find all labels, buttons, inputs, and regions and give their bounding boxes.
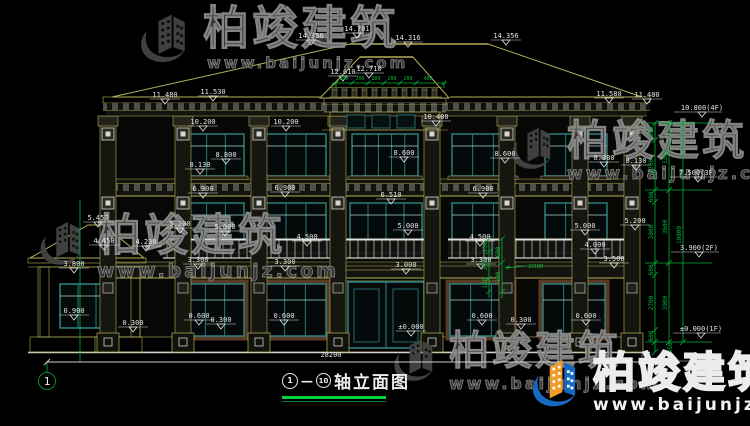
svg-text:4.230: 4.230 xyxy=(135,238,156,246)
svg-text:5.000: 5.000 xyxy=(574,222,595,230)
dim-label: 0.900 xyxy=(59,307,89,320)
svg-text:0.900: 0.900 xyxy=(63,307,84,315)
dim-label: 3.900(2F) xyxy=(671,244,719,257)
dim-label: 4.500 xyxy=(465,233,495,246)
svg-text:14.701: 14.701 xyxy=(344,25,369,33)
title-underline-2 xyxy=(282,401,386,402)
green-dim-label: 2700 xyxy=(648,158,655,173)
dim-label: 11.480 xyxy=(150,91,180,104)
svg-text:0.600: 0.600 xyxy=(575,312,596,320)
svg-text:10.200: 10.200 xyxy=(190,118,215,126)
dim-label: 3.300 xyxy=(183,256,213,269)
drawing-title: 轴立面图 xyxy=(334,368,410,393)
dim-label: 5.000 xyxy=(210,223,240,236)
dim-label: 4.500 xyxy=(292,233,322,246)
dim-label: 14.701 xyxy=(342,25,372,38)
dim-label: 7.500(3F) xyxy=(670,169,718,182)
dim-label: ±0.000 xyxy=(396,323,426,336)
svg-text:8.600: 8.600 xyxy=(393,149,414,157)
svg-text:3.300: 3.300 xyxy=(187,256,208,264)
green-dim-label: 200 xyxy=(403,76,412,82)
svg-text:±0.000(1F): ±0.000(1F) xyxy=(680,325,722,333)
total-width-dimension xyxy=(44,352,645,366)
dim-label: 6.900 xyxy=(270,184,300,197)
svg-text:12.610: 12.610 xyxy=(330,68,355,76)
green-note-label: 2X18M xyxy=(528,264,543,270)
dim-label: 0.300 xyxy=(506,316,536,329)
cad-elevation-screenshot: 柏竣建筑 www.baijunjz.com 柏竣建筑 www.baijunjz.… xyxy=(0,0,750,426)
svg-text:3.000: 3.000 xyxy=(395,261,416,269)
svg-text:10.400: 10.400 xyxy=(423,113,448,121)
green-dim-label: 3600 xyxy=(662,219,669,234)
svg-text:12.710: 12.710 xyxy=(356,65,381,73)
dim-label: 8.600 xyxy=(389,149,419,162)
green-dim-label: 600 xyxy=(648,126,655,137)
dim-label: ±0.000(1F) xyxy=(673,325,722,338)
axis-start-bubble: 1 xyxy=(282,373,298,389)
dim-label: 5.200 xyxy=(620,217,650,230)
svg-text:6.900: 6.900 xyxy=(192,185,213,193)
svg-text:0.600: 0.600 xyxy=(188,312,209,320)
dim-label: 11.480 xyxy=(632,91,662,104)
dim-label: 11.530 xyxy=(198,88,228,101)
dim-label: 11.580 xyxy=(594,90,624,103)
svg-text:4.500: 4.500 xyxy=(469,233,490,241)
dim-label: 3.000 xyxy=(391,261,421,274)
dim-label: 4.000 xyxy=(580,241,610,254)
dim-label: 10.200 xyxy=(271,118,301,131)
green-dim-label: 200 xyxy=(355,76,364,82)
green-dim-label: 200 xyxy=(371,76,380,82)
dim-label: 6.900 xyxy=(468,185,498,198)
drawing-title-block: 1 — 10 轴立面图 xyxy=(282,368,410,402)
dim-label: 8.130 xyxy=(621,157,651,170)
svg-text:5.000: 5.000 xyxy=(397,222,418,230)
dim-label: 0.600 xyxy=(571,312,601,325)
dim-label: 8.600 xyxy=(490,150,520,163)
svg-text:8.800: 8.800 xyxy=(215,151,236,159)
svg-text:-0.450: -0.450 xyxy=(687,353,712,361)
svg-text:11.480: 11.480 xyxy=(634,91,659,99)
svg-text:10.800(4F): 10.800(4F) xyxy=(681,104,723,112)
svg-text:0.300: 0.300 xyxy=(510,316,531,324)
green-dim-label: 3900 xyxy=(662,295,669,310)
svg-text:11.530: 11.530 xyxy=(200,88,225,96)
green-dim-label: 150 xyxy=(482,277,489,288)
svg-text:5.200: 5.200 xyxy=(169,220,190,228)
dim-label: 3.800 xyxy=(59,260,89,273)
green-dim-label: 600 xyxy=(648,330,655,341)
dim-label: 14.316 xyxy=(393,34,423,47)
svg-text:5.457: 5.457 xyxy=(87,214,108,222)
svg-text:0.600: 0.600 xyxy=(273,312,294,320)
total-width-label: 28200 xyxy=(320,351,341,359)
svg-text:8.600: 8.600 xyxy=(494,150,515,158)
dim-label: 8.130 xyxy=(185,161,215,174)
dim-label: 6.900 xyxy=(188,185,218,198)
svg-text:3.900(2F): 3.900(2F) xyxy=(680,244,718,252)
svg-text:8.130: 8.130 xyxy=(625,157,646,165)
svg-text:14.316: 14.316 xyxy=(395,34,420,42)
svg-text:4.500: 4.500 xyxy=(296,233,317,241)
green-dim-label: 600 xyxy=(495,246,502,257)
dim-label: 4.450 xyxy=(89,237,119,250)
dim-label: 5.000 xyxy=(570,222,600,235)
dim-label: 14.356 xyxy=(296,32,326,45)
svg-text:3.500: 3.500 xyxy=(603,255,624,263)
svg-text:14.356: 14.356 xyxy=(493,32,518,40)
svg-text:14.356: 14.356 xyxy=(298,32,323,40)
svg-text:8.130: 8.130 xyxy=(189,161,210,169)
svg-text:3.800: 3.800 xyxy=(63,260,84,268)
axis-end-bubble: 10 xyxy=(316,373,331,388)
svg-text:7.500(3F): 7.500(3F) xyxy=(679,169,717,177)
svg-text:5.000: 5.000 xyxy=(214,223,235,231)
green-dim-label: 450 xyxy=(667,342,674,353)
dim-label: 3.300 xyxy=(466,256,496,269)
svg-text:11.480: 11.480 xyxy=(152,91,177,99)
green-dim-label: 400 xyxy=(423,76,432,82)
svg-text:11.580: 11.580 xyxy=(596,90,621,98)
dim-label: 0.600 xyxy=(269,312,299,325)
dim-label: 5.457 xyxy=(83,214,113,227)
dimension-annotation-layer: 1 xyxy=(0,0,750,426)
dim-label: 0.300 xyxy=(206,316,236,329)
green-dim-label: 10800 xyxy=(676,226,683,244)
green-dim-label: 300 xyxy=(495,271,502,282)
title-underline xyxy=(282,396,386,399)
green-dim-label: 200 xyxy=(339,76,348,82)
dim-label: 5.000 xyxy=(393,222,423,235)
dim-label: 3.500 xyxy=(599,255,629,268)
dim-label: -0.450 xyxy=(672,353,720,366)
axis-bubble-number: 1 xyxy=(44,375,51,388)
svg-text:4.000: 4.000 xyxy=(584,241,605,249)
svg-text:±0.000: ±0.000 xyxy=(398,323,423,331)
svg-text:5.200: 5.200 xyxy=(624,217,645,225)
svg-text:0.300: 0.300 xyxy=(210,316,231,324)
dim-label: 10.800(4F) xyxy=(674,104,723,117)
svg-text:0.600: 0.600 xyxy=(471,312,492,320)
dim-label: 8.380 xyxy=(589,154,619,167)
svg-text:10.200: 10.200 xyxy=(273,118,298,126)
dim-label: 8.800 xyxy=(211,151,241,164)
green-dim-label: 600 xyxy=(648,264,655,275)
svg-text:6.900: 6.900 xyxy=(472,185,493,193)
svg-text:6.510: 6.510 xyxy=(380,191,401,199)
svg-text:8.380: 8.380 xyxy=(593,154,614,162)
green-dim-label: 300 xyxy=(482,259,489,270)
dim-label: 10.200 xyxy=(188,118,218,131)
dim-label: 5.200 xyxy=(165,220,195,233)
svg-text:3.300: 3.300 xyxy=(274,258,295,266)
dim-label: 0.300 xyxy=(118,319,148,332)
dim-label: 10.400 xyxy=(421,113,451,126)
axis-grid: 1 xyxy=(39,200,81,390)
dim-label: 3.300 xyxy=(270,258,300,271)
green-dim-label: 3300 xyxy=(662,149,669,164)
axis-range-dash: — xyxy=(301,374,313,388)
green-dim-label: 2700 xyxy=(648,295,655,310)
center-dimension-chain xyxy=(486,236,526,298)
svg-text:0.300: 0.300 xyxy=(122,319,143,327)
dim-label: 6.510 xyxy=(376,191,406,204)
green-dim-label: 600 xyxy=(648,191,655,202)
green-dim-label: 3000 xyxy=(648,224,655,239)
dim-label: 0.600 xyxy=(467,312,497,325)
green-dim-label: 150 xyxy=(482,241,489,252)
svg-text:4.450: 4.450 xyxy=(93,237,114,245)
dim-label: 4.230 xyxy=(131,238,161,251)
svg-text:6.900: 6.900 xyxy=(274,184,295,192)
dim-label: 14.356 xyxy=(491,32,521,45)
green-dim-label: 200 xyxy=(387,76,396,82)
